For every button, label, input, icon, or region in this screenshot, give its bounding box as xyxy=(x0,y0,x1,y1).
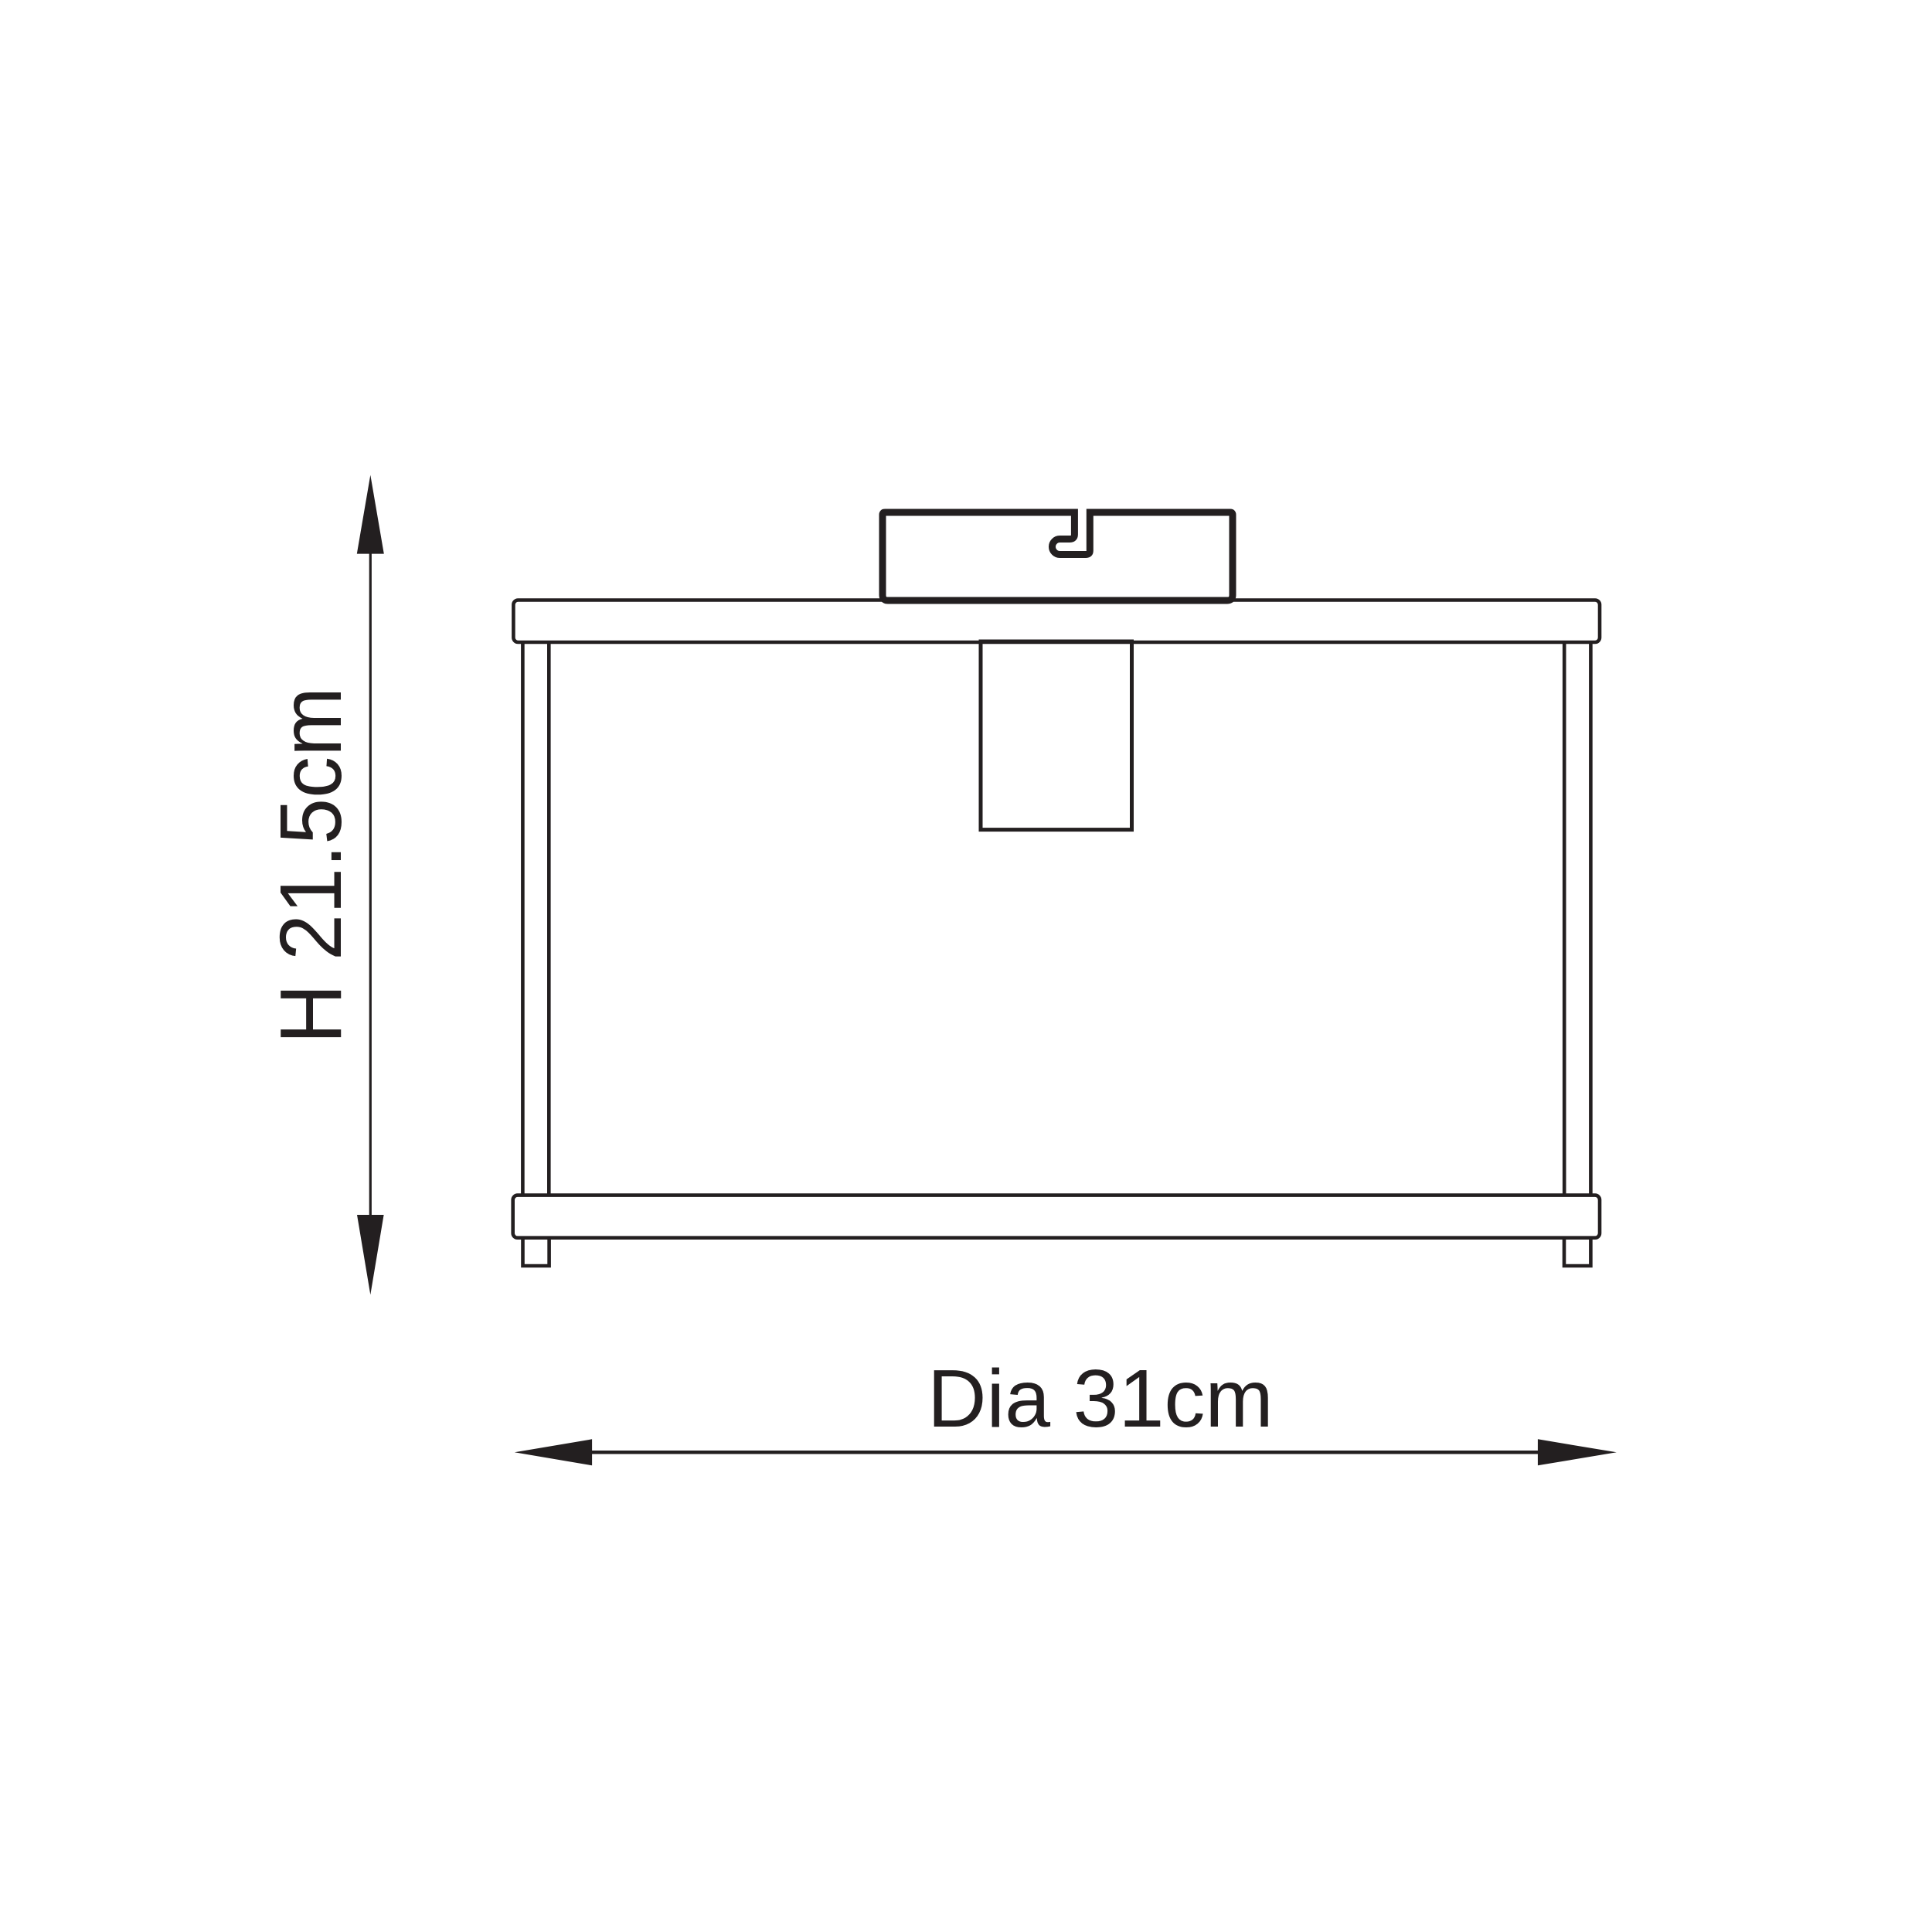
svg-text:Dia 31cm: Dia 31cm xyxy=(927,1353,1274,1444)
svg-text:H 21.5cm: H 21.5cm xyxy=(263,687,360,1044)
